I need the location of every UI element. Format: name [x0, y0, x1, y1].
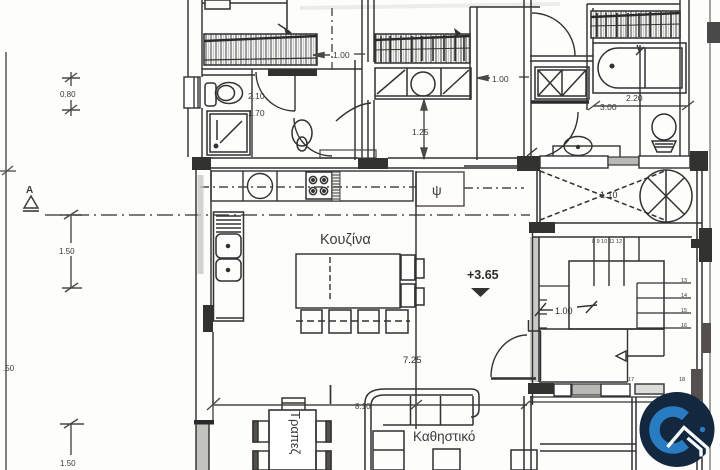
svg-text:+3.65: +3.65 [467, 268, 499, 282]
svg-text:1.00: 1.00 [492, 74, 509, 84]
svg-text:Καθηστικό: Καθηστικό [413, 429, 475, 444]
svg-text:0.80: 0.80 [60, 90, 76, 99]
svg-text:1.00: 1.00 [555, 306, 573, 316]
svg-text:1.50: 1.50 [60, 459, 76, 468]
svg-text:7.25: 7.25 [403, 355, 422, 366]
svg-text:1.10: 1.10 [600, 190, 618, 200]
svg-text:A: A [26, 185, 33, 196]
svg-text:8 9 10 11 12: 8 9 10 11 12 [592, 239, 622, 245]
svg-text:ψ: ψ [432, 183, 442, 198]
svg-text:Τραπεζ: Τραπεζ [288, 411, 303, 455]
svg-text:15: 15 [681, 308, 687, 314]
svg-text:17: 17 [628, 377, 634, 383]
svg-text:8.10: 8.10 [355, 402, 371, 411]
svg-text:13: 13 [681, 278, 687, 284]
svg-text:3.00: 3.00 [600, 102, 617, 112]
svg-text:14: 14 [681, 293, 687, 299]
svg-text:18: 18 [679, 377, 685, 383]
svg-text:.50: .50 [3, 364, 15, 373]
svg-text:16: 16 [681, 323, 687, 329]
svg-text:Κουζίνα: Κουζίνα [320, 232, 371, 248]
svg-text:1.00: 1.00 [333, 50, 350, 60]
svg-text:1.50: 1.50 [59, 247, 75, 256]
svg-text:1.25: 1.25 [412, 127, 429, 137]
